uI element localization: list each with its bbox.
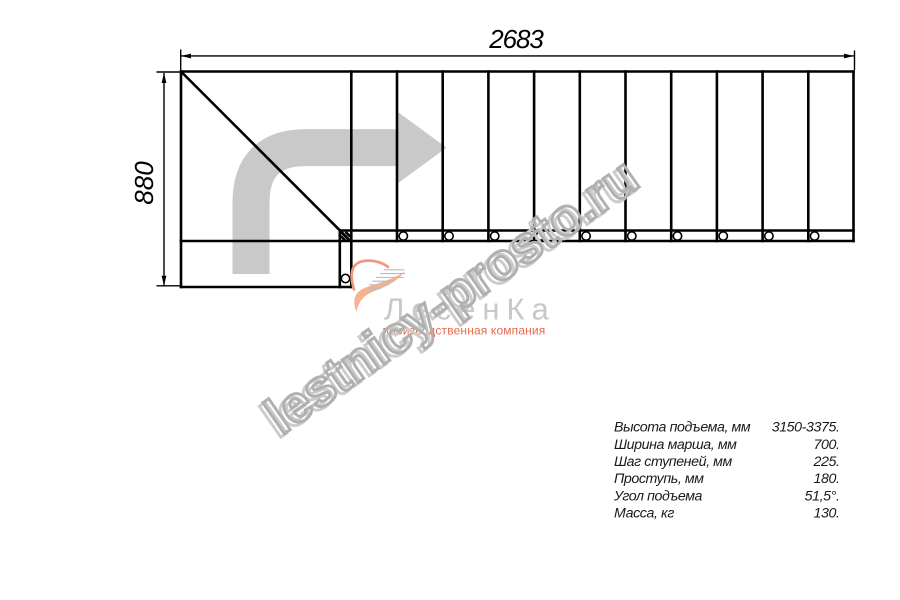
- svg-text:Ширина марша, мм: Ширина марша, мм: [614, 437, 737, 453]
- svg-text:180.: 180.: [813, 471, 839, 487]
- svg-text:225.: 225.: [812, 454, 839, 470]
- svg-text:51,5°.: 51,5°.: [805, 489, 840, 505]
- svg-text:Высота подъема, мм: Высота подъема, мм: [614, 420, 751, 436]
- svg-text:Шаг ступеней, мм: Шаг ступеней, мм: [614, 454, 732, 470]
- svg-text:3150-3375.: 3150-3375.: [772, 420, 840, 436]
- svg-text:Проступь, мм: Проступь, мм: [614, 471, 704, 487]
- svg-text:Масса, кг: Масса, кг: [614, 506, 674, 522]
- svg-text:880: 880: [129, 161, 159, 205]
- svg-text:Угол подъема: Угол подъема: [613, 489, 703, 505]
- svg-text:700.: 700.: [813, 437, 839, 453]
- svg-text:130.: 130.: [813, 506, 839, 522]
- svg-text:2683: 2683: [488, 24, 544, 54]
